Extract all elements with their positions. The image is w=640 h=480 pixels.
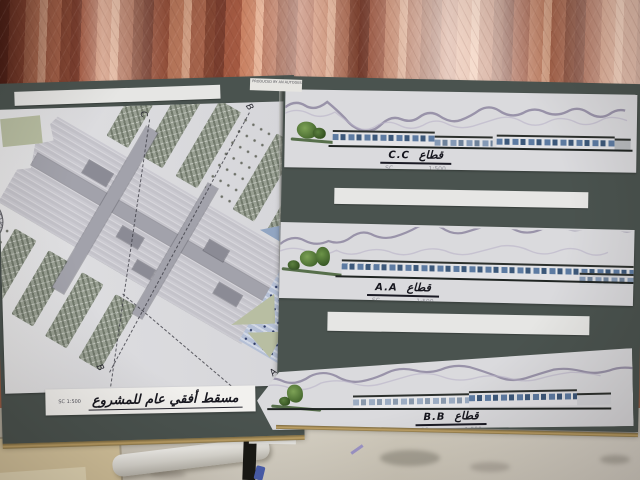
section-label-cc: C.C قطاع SC.1:500 (380, 148, 451, 173)
section-cc-sheet: C.C قطاع SC.1:500 (284, 89, 637, 173)
section-letters: A.A (375, 282, 398, 294)
tree-icon (316, 247, 330, 266)
section-bb-sheet: B.B قطاع SC.1:500 (256, 348, 633, 433)
scale-prefix: SC. (385, 165, 395, 172)
window-band (469, 393, 577, 401)
lawn-patch (0, 115, 43, 147)
blank-label-strip (14, 85, 220, 106)
blank-label-strip (327, 312, 589, 336)
scale-value: 1:500 (429, 166, 446, 173)
table-smudge (600, 455, 630, 464)
building-endcap (577, 393, 611, 406)
site-plan-sheet: C B B A (0, 101, 301, 394)
section-letters: C.C (388, 150, 410, 161)
section-label-aa: A.A قطاع SC.1:500 (367, 280, 439, 306)
section-aa-sheet: A.A قطاع SC.1:500 (279, 222, 635, 306)
section-arabic: قطاع (407, 281, 431, 295)
section-letters: B.B (423, 412, 445, 423)
plan-title-arabic: مسقط أفقي عام للمشروع (88, 390, 243, 410)
scale-prefix: SC. (372, 297, 382, 304)
blank-label-strip (334, 188, 588, 208)
table-smudge (380, 450, 440, 466)
window-band (353, 397, 469, 405)
tree-icon (313, 128, 326, 139)
section-arabic: قطاع (419, 148, 443, 161)
site-plan-drawing (0, 101, 301, 394)
window-band (435, 140, 493, 147)
photo-canvas: C B B A SC 1:500 مسقط أفقي عام للمشروع (0, 0, 640, 480)
right-presentation-board: C.C قطاع SC.1:500 A.A قطاع SC.1:500 (276, 76, 640, 432)
window-band (333, 134, 435, 142)
scale-value: 1:500 (416, 298, 433, 305)
plan-scale-text: SC 1:500 (58, 399, 81, 405)
table-smudge (470, 462, 510, 472)
left-presentation-board: C B B A SC 1:500 مسقط أفقي عام للمشروع (0, 75, 305, 444)
window-band (497, 139, 615, 147)
section-arabic: قطاع (454, 409, 478, 422)
plan-title-strip: SC 1:500 مسقط أفقي عام للمشروع (45, 385, 255, 415)
autodesk-watermark: PRODUCED BY AN AUTODESK EDUCATIONAL PROD… (250, 78, 302, 92)
mountain-skyline (285, 91, 638, 135)
